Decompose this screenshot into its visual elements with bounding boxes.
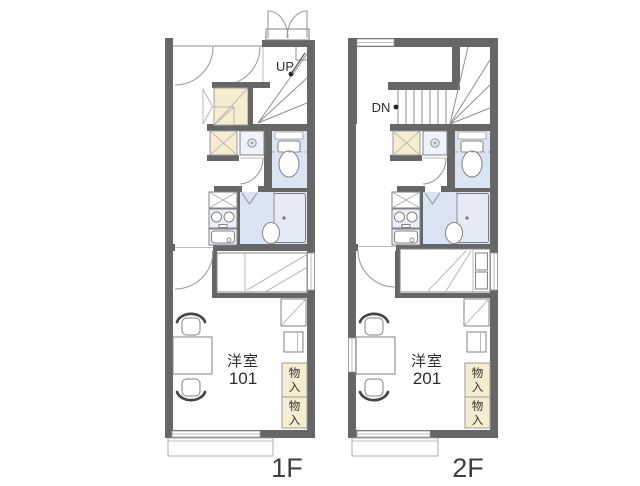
floor-label-1f: 1F [271,453,303,483]
stair-label-dn: DN [372,100,391,115]
wall-right-upper-2f [490,38,498,124]
floor-plan-2f: DN 洋室 201 2F [348,38,498,483]
room-type-label-1f: 洋室 [227,353,259,370]
floorplan-svg: 物 入 物 入 [0,0,640,486]
wall-right-upper-1f [307,40,315,124]
porch-door-arc-right [222,47,260,85]
bed-outline-1f [217,253,307,292]
wall-stair-side-2f [452,47,460,86]
floor-plan-1f: UP 洋室 101 1F [165,11,315,483]
bed-pillow-bottom-2f [476,272,488,289]
floor-label-2f: 2F [452,453,484,483]
floorplan-canvas: 物 入 物 入 [0,0,640,486]
porch-door-arc-left [175,47,213,85]
bifold-door-icon [203,89,213,124]
stair-treads-2f [398,90,446,124]
bed-pillow-top-2f [476,253,488,270]
room-door-arc-2f [358,250,395,287]
stair-label-up: UP [276,59,294,74]
stair-arrow-dot-2f [394,105,399,110]
wall-stair-hall-2f [388,82,460,90]
bed-2f [400,249,490,292]
room-number-2f: 201 [413,369,441,388]
wall-left-upper-1f [165,38,173,124]
wall-left-upper-2f [348,38,357,124]
wall-storage-stair [248,88,253,125]
room-type-label-2f: 洋室 [411,353,443,370]
room-door-arc-1f [175,251,213,289]
wall-top-1f [262,40,315,47]
room-number-1f: 101 [229,369,257,388]
wall-entry-stub [212,82,270,88]
bed-1f [217,253,307,292]
